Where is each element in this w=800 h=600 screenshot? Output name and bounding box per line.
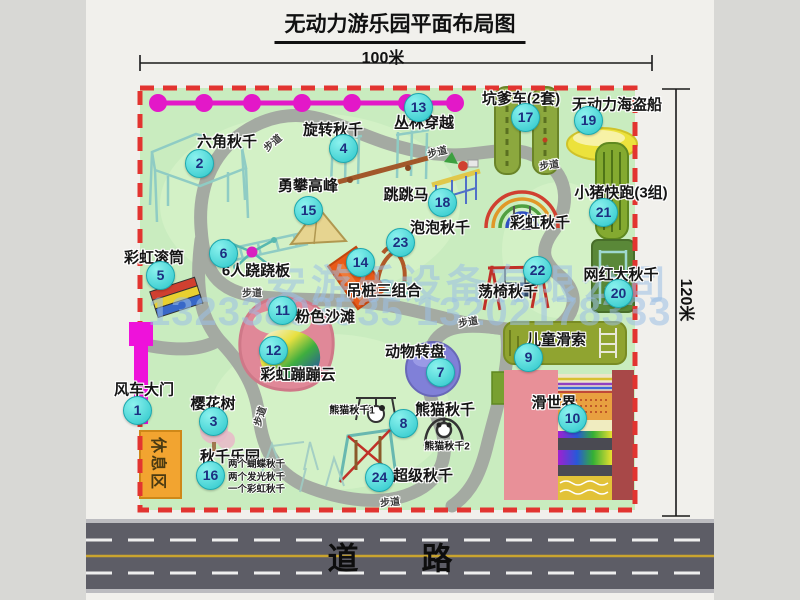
label-panda-swing: 熊猫秋千 — [415, 399, 475, 420]
label-peak-climbing: 勇攀高峰 — [278, 175, 338, 196]
marker-jumping-horse: 18 — [428, 188, 457, 217]
label-super-swing: 超级秋千 — [393, 465, 453, 486]
road-label: 道 路 — [328, 534, 469, 579]
marker-pink-beach: 11 — [268, 296, 297, 325]
marker-panda-swing: 8 — [389, 409, 418, 438]
label-panda-swing-2: 熊猫秋千2 — [424, 438, 470, 453]
marker-pirate-ship: 19 — [574, 106, 603, 135]
marker-six-person-seesaw: 6 — [209, 239, 238, 268]
label-rotating-swing: 旋转秋千 — [303, 119, 363, 140]
swing-park-notes: 两个蝴蝶秋千 两个发光秋千 一个彩虹秋千 — [228, 459, 285, 497]
label-pink-beach: 粉色沙滩 — [295, 306, 355, 327]
marker-swing-park: 16 — [196, 461, 225, 490]
width-dimension-label: 100米 — [362, 44, 405, 68]
label-hanging-pile-combo: 吊桩三组合 — [346, 280, 421, 301]
marker-kids-zipline: 9 — [514, 343, 543, 372]
marker-bubble-swing: 23 — [386, 228, 415, 257]
marker-rainbow-roller: 5 — [146, 261, 175, 290]
marker-slide-world: 10 — [558, 404, 587, 433]
label-windmill-gate: 风车大门 — [114, 379, 174, 400]
marker-pit-car: 17 — [511, 103, 540, 132]
marker-hexagon-swing: 2 — [185, 149, 214, 178]
label-rainbow-swing: 彩虹秋千 — [510, 212, 570, 233]
marker-jungle-crossing: 13 — [404, 93, 433, 122]
marker-peak-climbing: 15 — [294, 196, 323, 225]
marker-cherry-tree: 3 — [199, 407, 228, 436]
marker-super-swing: 24 — [365, 463, 394, 492]
label-bubble-swing: 泡泡秋千 — [410, 217, 470, 238]
marker-swing-chair: 22 — [523, 256, 552, 285]
label-rest-area: 休息区 — [148, 437, 172, 491]
label-rainbow-bounce-cloud: 彩虹蹦蹦云 — [260, 364, 335, 385]
walkway-label: 步道 — [538, 155, 560, 173]
note-line: 两个蝴蝶秋千 — [228, 459, 285, 472]
note-line: 两个发光秋千 — [228, 472, 285, 485]
label-swing-chair: 荡椅秋千 — [478, 281, 538, 302]
height-dimension-label: 120米 — [676, 279, 700, 322]
label-hexagon-swing: 六角秋千 — [197, 131, 257, 152]
marker-big-net-swing: 20 — [604, 279, 633, 308]
label-piggy-run: 小猪快跑(3组) — [574, 182, 667, 203]
marker-hanging-pile-combo: 14 — [346, 248, 375, 277]
park-plan-figure: 安游乐设备有限公司 13233803535 13202178333 无动力游乐园… — [0, 0, 800, 600]
label-jumping-horse: 跳跳马 — [383, 184, 428, 205]
label-panda-swing-1: 熊猫秋千1 — [329, 402, 375, 417]
page-title: 无动力游乐园平面布局图 — [275, 8, 526, 44]
marker-piggy-run: 21 — [589, 198, 618, 227]
note-line: 一个彩虹秋千 — [228, 484, 285, 497]
marker-rainbow-bounce-cloud: 12 — [259, 336, 288, 365]
walkway-label: 步道 — [242, 285, 262, 300]
marker-rotating-swing: 4 — [329, 134, 358, 163]
marker-windmill-gate: 1 — [123, 396, 152, 425]
walkway-label: 步道 — [379, 493, 400, 510]
marker-animal-carousel: 7 — [426, 358, 455, 387]
